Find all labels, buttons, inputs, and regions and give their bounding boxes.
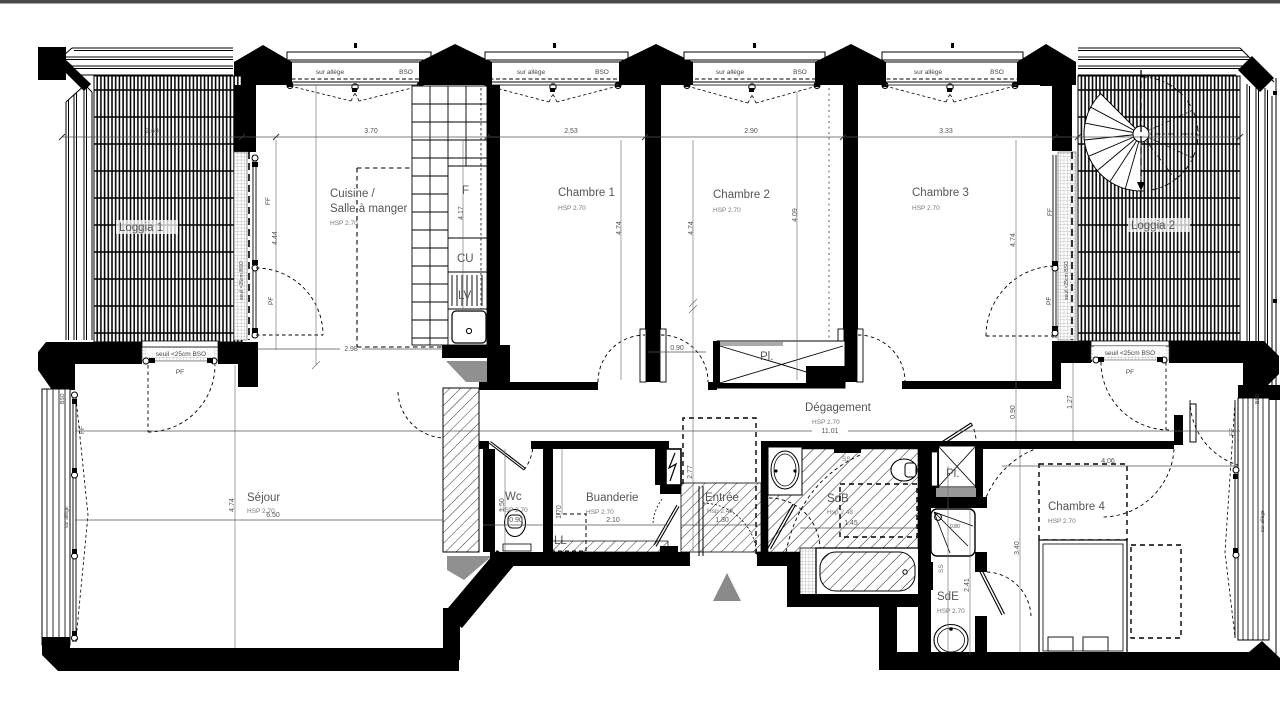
svg-text:3.40: 3.40 [1014,541,1021,555]
svg-text:Chambre 1: Chambre 1 [558,187,615,199]
svg-text:sur allège: sur allège [64,506,70,528]
svg-text:BSO: BSO [990,69,1004,76]
svg-text:HSP 2.70: HSP 2.70 [937,608,965,615]
svg-text:4.74: 4.74 [1010,233,1017,247]
svg-text:0.90: 0.90 [1010,405,1017,419]
svg-text:Dégagement: Dégagement [805,402,872,414]
svg-text:sur allège: sur allège [716,69,745,76]
svg-text:6.50: 6.50 [266,512,280,519]
svg-text:Chambre 4: Chambre 4 [1048,501,1105,513]
svg-text:1.30: 1.30 [715,517,729,524]
svg-text:PF: PF [268,297,275,305]
svg-text:PF: PF [1126,369,1134,376]
svg-text:Chambre 3: Chambre 3 [912,187,969,199]
svg-text:BSO: BSO [1255,393,1261,404]
svg-text:BSO: BSO [399,69,413,76]
svg-text:4.09: 4.09 [792,208,799,222]
svg-text:4.06: 4.06 [1101,458,1115,465]
svg-text:HSP 2.70: HSP 2.70 [330,220,358,227]
svg-text:FF: FF [79,426,86,434]
svg-text:4.74: 4.74 [688,221,695,235]
svg-text:Hsp 2.48: Hsp 2.48 [707,508,733,515]
svg-text:4.74: 4.74 [616,221,623,235]
svg-text:2.69: 2.69 [145,128,159,135]
svg-text:2.98: 2.98 [344,346,358,353]
svg-text:2.41: 2.41 [964,578,971,592]
svg-text:2.10: 2.10 [606,517,620,524]
svg-text:CU: CU [457,253,474,265]
svg-text:LV: LV [458,290,472,302]
svg-text:sur allège: sur allège [914,69,943,76]
svg-text:1.27: 1.27 [1067,395,1074,409]
svg-text:BSO: BSO [595,69,609,76]
svg-text:Loggia 1: Loggia 1 [119,222,163,234]
svg-text:Chambre 2: Chambre 2 [713,189,770,201]
svg-text:2.53: 2.53 [564,128,578,135]
svg-text:seuil <25cm BSO: seuil <25cm BSO [239,261,245,300]
svg-text:sur allège: sur allège [517,69,546,76]
svg-text:11.01: 11.01 [822,428,839,435]
svg-text:BSO: BSO [793,69,807,76]
svg-text:1.50: 1.50 [499,498,506,512]
svg-text:2.77: 2.77 [687,465,694,479]
svg-text:3.70: 3.70 [364,128,378,135]
svg-text:SdB: SdB [827,493,849,505]
svg-text:Séjour: Séjour [247,492,280,504]
svg-text:HSP 2.70: HSP 2.70 [912,205,940,212]
svg-text:sur allège: sur allège [316,69,345,76]
svg-text:seuil <25cm BSO: seuil <25cm BSO [1105,350,1155,357]
svg-text:0.90: 0.90 [509,517,523,524]
svg-text:SS: SS [938,564,945,573]
svg-text:0.80: 0.80 [950,524,960,530]
svg-text:HSP 2.70: HSP 2.70 [1048,518,1076,525]
svg-text:2.90: 2.90 [744,128,758,135]
svg-text:PF: PF [176,369,184,376]
svg-text:3.33: 3.33 [939,128,953,135]
svg-text:HSP 2.70: HSP 2.70 [713,207,741,214]
svg-text:Entrée: Entrée [705,492,739,504]
svg-text:sur allège: sur allège [1260,510,1266,532]
svg-text:Salle à manger: Salle à manger [330,203,408,215]
svg-text:HSP 2.70: HSP 2.70 [586,509,614,516]
svg-text:0.90: 0.90 [670,345,684,352]
svg-text:seuil <25cm BSO: seuil <25cm BSO [156,351,206,358]
svg-text:BSO: BSO [60,393,66,404]
svg-text:Wc: Wc [505,491,522,503]
svg-text:1.45: 1.45 [844,520,858,527]
svg-text:4.44: 4.44 [272,231,279,245]
svg-text:Buanderie: Buanderie [586,492,638,504]
svg-text:PF: PF [1046,297,1053,305]
svg-text:seuil <25cm BSO: seuil <25cm BSO [1064,261,1070,300]
svg-text:4.74: 4.74 [229,498,236,512]
svg-text:Pl.: Pl. [760,351,773,363]
svg-text:Loggia 2: Loggia 2 [1131,220,1175,232]
svg-text:FF: FF [265,197,272,205]
svg-text:1.70: 1.70 [556,505,563,519]
svg-text:FF: FF [1047,208,1054,216]
svg-text:4.17: 4.17 [458,206,465,220]
svg-text:HSP 2.70: HSP 2.70 [558,205,586,212]
svg-text:Cuisine /: Cuisine / [330,188,376,200]
svg-text:HSP 2.70: HSP 2.70 [812,419,840,426]
